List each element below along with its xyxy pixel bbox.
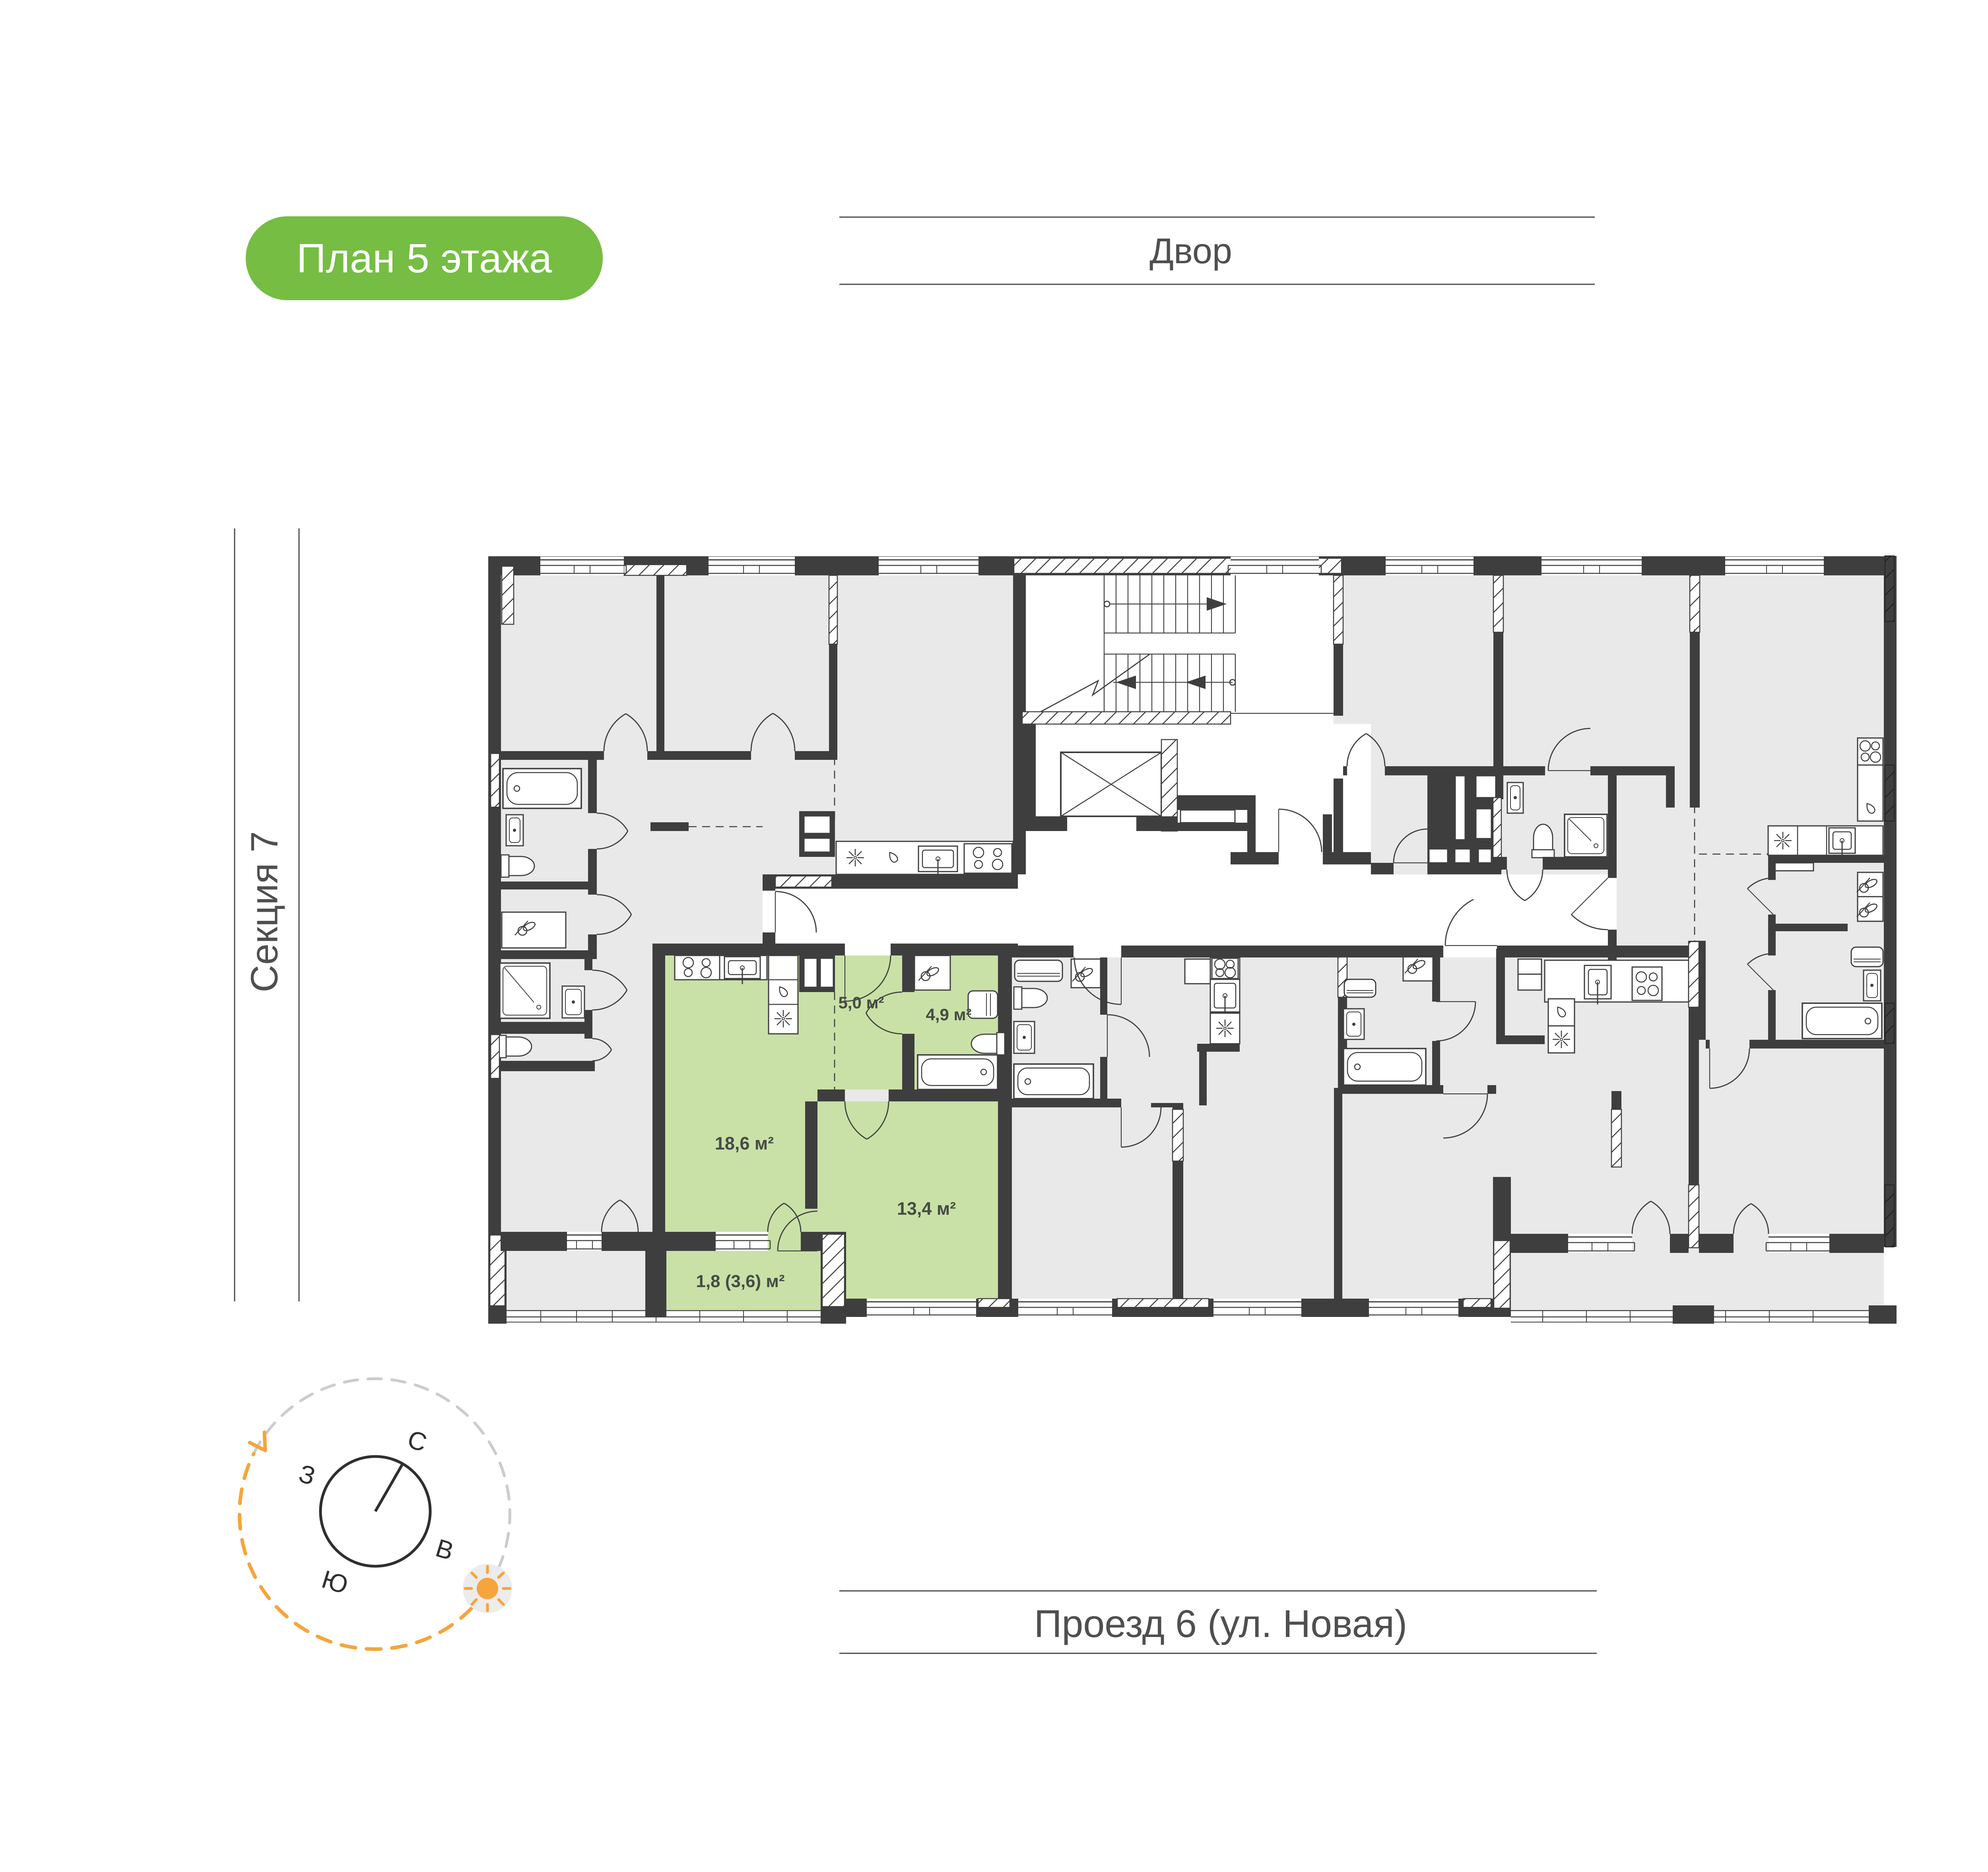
svg-text:План 5 этажа: План 5 этажа xyxy=(297,235,552,281)
svg-text:Проезд 6 (ул. Новая): Проезд 6 (ул. Новая) xyxy=(1034,1602,1408,1645)
svg-text:Двор: Двор xyxy=(1149,231,1232,271)
svg-text:5,0 м²: 5,0 м² xyxy=(838,993,884,1012)
svg-text:1,8 (3,6) м²: 1,8 (3,6) м² xyxy=(696,1272,784,1291)
svg-text:18,6 м²: 18,6 м² xyxy=(715,1133,774,1153)
svg-text:13,4 м²: 13,4 м² xyxy=(897,1198,956,1219)
svg-text:4,9 м²: 4,9 м² xyxy=(926,1005,971,1024)
svg-text:Секция 7: Секция 7 xyxy=(243,831,285,992)
